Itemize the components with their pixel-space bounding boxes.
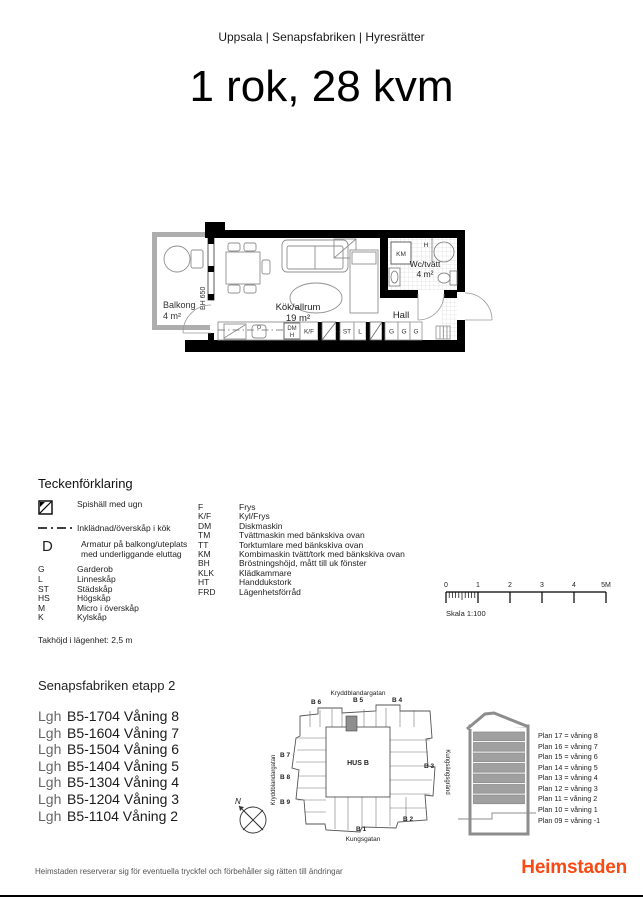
compass-icon — [239, 806, 266, 833]
sofa — [282, 240, 348, 272]
svg-text:1: 1 — [476, 582, 480, 589]
street-right-label: Kungsängsgränd — [444, 749, 450, 794]
window-wall — [208, 237, 214, 340]
section-floor-label: Plan 14 = våning 5 — [538, 763, 598, 772]
wc-area-label: 4 m² — [417, 269, 434, 279]
legend-abbr-row: GGarderob — [38, 565, 198, 575]
ceiling-height-note: Takhöjd i lägenhet: 2,5 m — [38, 635, 198, 645]
dishwasher-box: DM H — [284, 323, 300, 339]
street-left-label: Kryddblandargatan — [271, 755, 277, 806]
apartment-row: LghB5-1704 Våning 8 — [38, 708, 179, 725]
apartment-list: Senapsfabriken etapp 2 LghB5-1704 Våning… — [38, 678, 179, 824]
entrance-b6: B 6 — [311, 699, 322, 706]
bed — [350, 250, 378, 313]
section-floor-label: Plan 17 = våning 8 — [538, 731, 598, 740]
apartment-row: LghB5-1404 Våning 5 — [38, 758, 179, 775]
apartment-row: LghB5-1304 Våning 4 — [38, 774, 179, 791]
st-label: ST — [343, 329, 351, 336]
apartment-row: LghB5-1204 Våning 3 — [38, 791, 179, 808]
legend-abbr-row: BHBröstningshöjd, mått till uk fönster — [198, 559, 438, 568]
scale-label: Skala 1:100 — [446, 609, 486, 618]
apartment-row: LghB5-1504 Våning 6 — [38, 741, 179, 758]
legend-heading: Teckenförklaring — [38, 476, 438, 491]
dining-table — [226, 243, 270, 293]
site-plan: Kryddblandargatan HUS B B 6 B 5 — [230, 680, 462, 852]
heimstaden-logo: Heimstaden — [521, 857, 627, 879]
wc-label: Wc/tvätt — [410, 259, 441, 269]
entrance-b3: B 3 — [424, 763, 435, 770]
kitchen-label: Kök/allrum — [276, 302, 321, 313]
legend-item-stove: Spishäll med ugn — [38, 500, 198, 518]
compass-n-label: N — [235, 797, 241, 806]
entrance-b1: B 1 — [356, 826, 367, 833]
svg-text:2: 2 — [508, 582, 512, 589]
apartment-row: LghB5-1104 Våning 2 — [38, 808, 179, 825]
svg-text:DM: DM — [287, 326, 296, 332]
lamp-d-icon: D — [38, 540, 81, 554]
section-floor-label: Plan 10 = våning 1 — [538, 805, 598, 814]
section-floor-label: Plan 09 = våning -1 — [538, 816, 600, 825]
legend: Teckenförklaring Spishäll med ugn — [38, 476, 438, 499]
g3-label: G — [413, 329, 418, 336]
entrance-b2: B 2 — [403, 816, 414, 823]
dashdot-line-icon — [38, 524, 77, 535]
svg-text:K/F: K/F — [304, 329, 314, 336]
balcony-label: Balkong — [163, 300, 196, 310]
scale-bar: 0 1 2 3 4 5M Skala 1:100 — [438, 577, 618, 622]
washer-km: KM — [391, 242, 411, 264]
fridge-freezer: K/F — [300, 322, 318, 340]
section-floor-label: Plan 15 = våning 6 — [538, 752, 598, 761]
bathroom-sink — [389, 268, 400, 286]
legend-abbr-row: LLinneskåp — [38, 575, 198, 585]
legend-abbr-row: MMicro i överskåp — [38, 604, 198, 614]
section-floor-label: Plan 16 = våning 7 — [538, 742, 598, 751]
hall-tiles — [442, 298, 457, 340]
towel-dryer-label: H — [424, 242, 429, 249]
svg-text:0: 0 — [444, 582, 448, 589]
apartment-list-heading: Senapsfabriken etapp 2 — [38, 678, 179, 693]
street-top-label: Kryddblandargatan — [331, 690, 386, 697]
entrance-b5: B 5 — [353, 697, 364, 704]
legend-abbr-row: KKylskåp — [38, 613, 198, 623]
footer-disclaimer: Heimstaden reserverar sig för eventuella… — [35, 867, 343, 876]
legend-abbr-row: HTHanddukstork — [198, 578, 438, 587]
entrance-b9: B 9 — [280, 799, 291, 806]
stove-icon — [38, 500, 77, 518]
legend-item-armatur: D Armatur på balkong/uteplats med underl… — [38, 540, 198, 559]
g2-label: G — [401, 329, 406, 336]
entrance-door — [465, 293, 492, 320]
g1-label: G — [389, 329, 394, 336]
legend-item-cladding: Inklädnad/överskåp i kök — [38, 524, 198, 535]
section-floor-label: Plan 11 = våning 2 — [538, 794, 597, 803]
apartment-row: LghB5-1604 Våning 7 — [38, 725, 179, 742]
svg-text:4: 4 — [572, 582, 576, 589]
hus-b-label: HUS B — [347, 760, 369, 767]
balcony-table — [164, 246, 203, 272]
page-bottom-rule — [0, 895, 643, 897]
l-label: L — [358, 329, 362, 336]
entrance-b7: B 7 — [280, 752, 291, 759]
legend-abbr-row: FRDLägenhetsförråd — [198, 588, 438, 597]
hall-label: Hall — [393, 310, 409, 321]
section-floor-label: Plan 12 = våning 3 — [538, 784, 598, 793]
svg-text:3: 3 — [540, 582, 544, 589]
street-bottom-label: Kungsgatan — [346, 836, 381, 843]
section-floors-gray — [474, 732, 525, 804]
svg-text:5M: 5M — [601, 582, 611, 589]
entrance-b8: B 8 — [280, 774, 291, 781]
page-title: 1 rok, 28 kvm — [0, 62, 643, 112]
balcony-area-label: 4 m² — [163, 311, 181, 321]
floor-plan-drawing: Balkong 4 m² BH 650 — [148, 218, 493, 365]
legend-abbr-row: K/FKyl/Frys — [198, 512, 438, 521]
section-floor-label: Plan 13 = våning 4 — [538, 773, 598, 782]
highlighted-unit — [346, 716, 357, 731]
breadcrumb: Uppsala | Senapsfabriken | Hyresrätter — [0, 30, 643, 44]
building-section: Plan 17 = våning 8 Plan 16 = våning 7 Pl… — [458, 693, 638, 843]
svg-text:KM: KM — [396, 251, 406, 258]
brochure-page: Uppsala | Senapsfabriken | Hyresrätter 1… — [0, 0, 643, 900]
svg-text:H: H — [290, 333, 294, 339]
legend-abbr-row: FFrys — [198, 503, 438, 512]
legend-abbr-row: STStädskåp — [38, 585, 198, 595]
bathroom-door — [418, 294, 444, 320]
entrance-b4: B 4 — [392, 697, 403, 704]
legend-abbr-row: KLKKlädkammare — [198, 569, 438, 578]
